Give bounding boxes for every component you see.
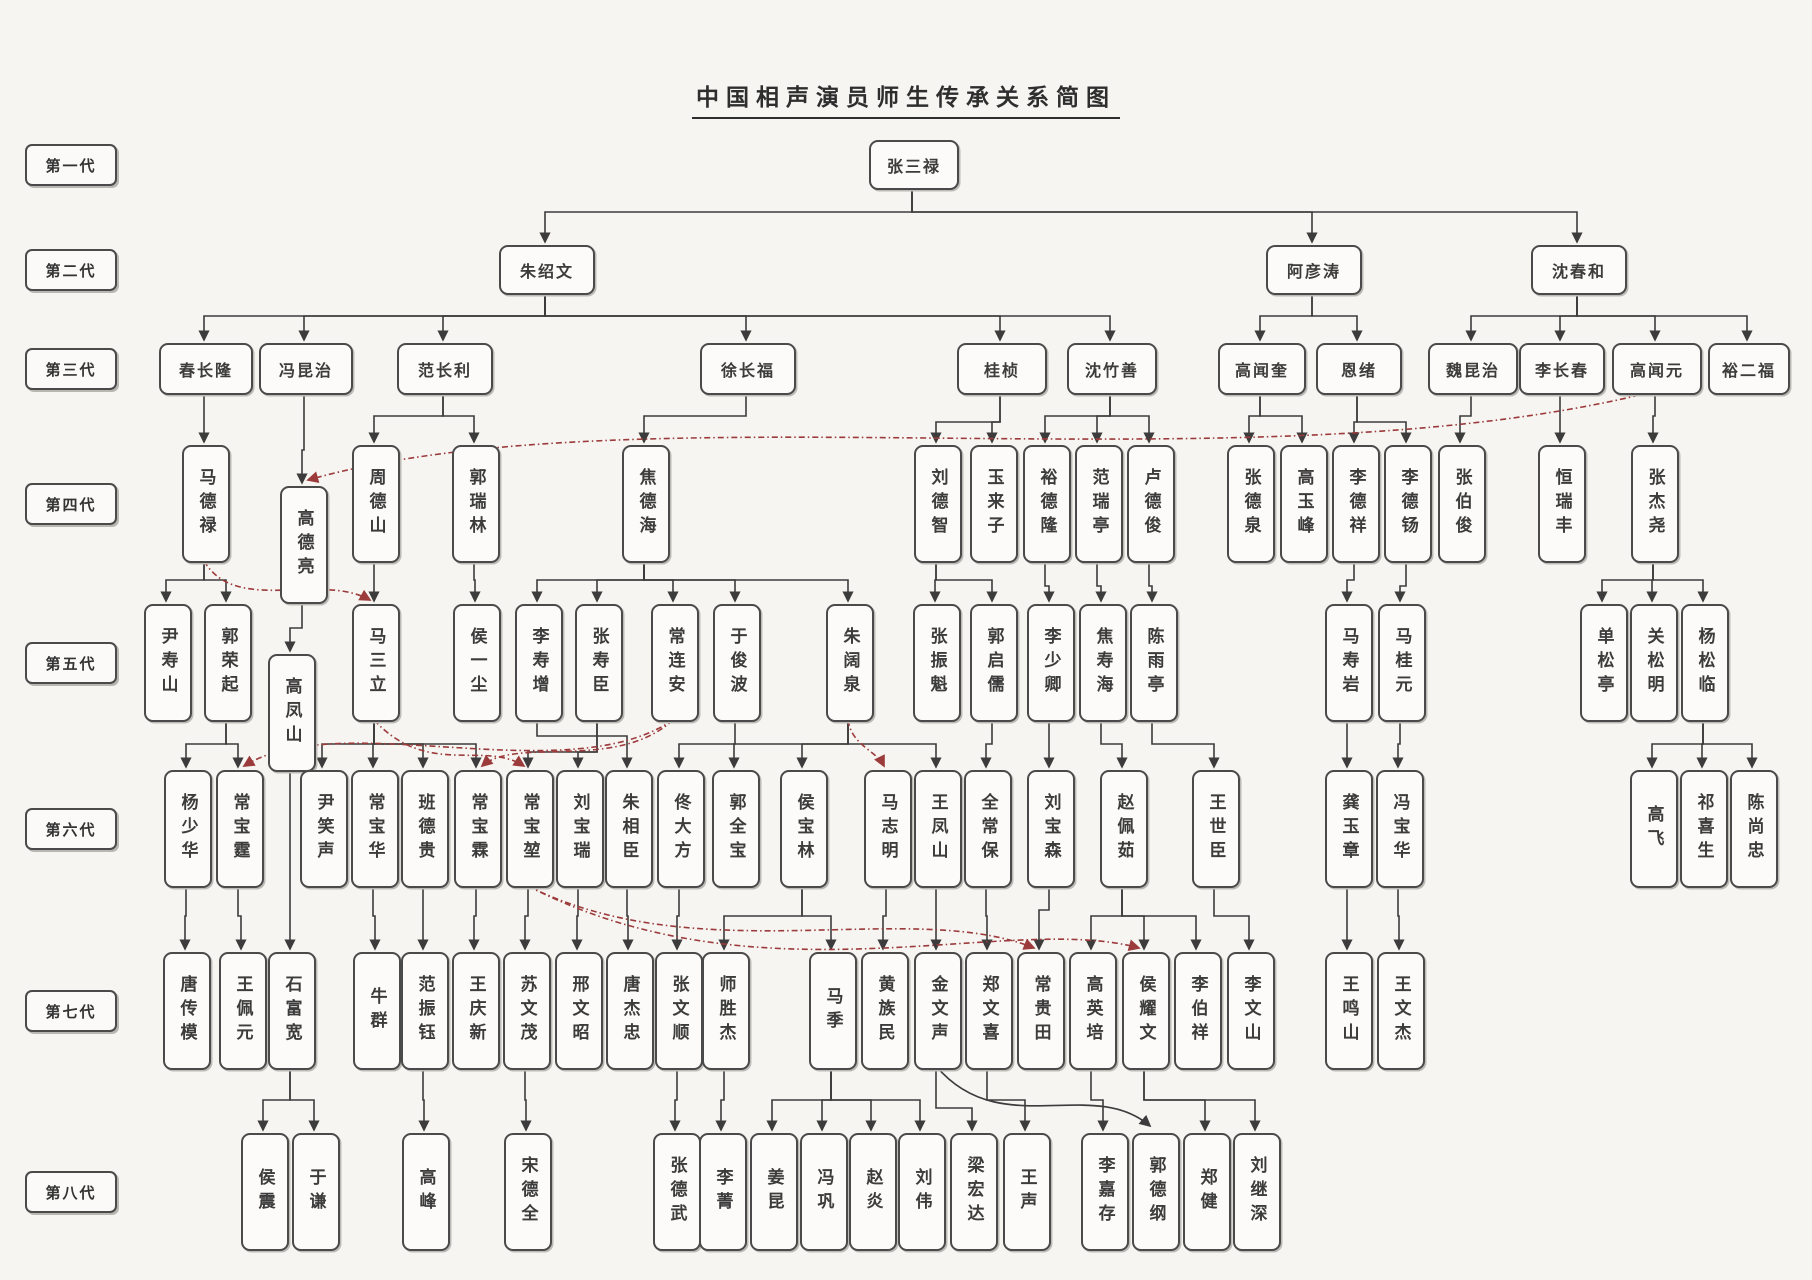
person-node-liu_baosen: 刘宝森 [1027,770,1075,888]
person-node-gong_yuzhang: 龚玉章 [1325,770,1373,888]
edge-zhu_shaowen-fan_changli [443,291,545,340]
edge-yang_shaohua-tang_chuanmo [185,884,186,949]
person-node-yu_delong: 裕德隆 [1023,445,1071,563]
person-node-guo_degang: 郭德纲 [1132,1133,1180,1251]
generation-label-7: 第七代 [25,990,117,1032]
edge-zhu_shaowen-shen_zhushan [545,291,1110,340]
person-node-guan_songming: 关松明 [1630,604,1678,722]
edge-jin_wensheng-liang_hongda [936,1066,972,1130]
person-node-ma_shouyan: 马寿岩 [1325,604,1373,722]
edge-quan_changbao-zheng_wenxi [986,884,987,949]
edge-guo_qiru-quan_changbao [986,718,992,767]
person-node-jin_wensheng: 金文声 [914,952,962,1070]
edge-li_dexi-ma_guiyuan [1400,559,1406,601]
person-node-zhou_deshan: 周德山 [352,445,400,563]
edge-tong_dafang-zhang_wenshun [677,884,679,949]
person-node-jiao_shouhai: 焦寿海 [1079,604,1127,722]
edge-ma_zhiming-huang_zumin [883,884,886,949]
person-node-chang_baoting: 常宝霆 [216,770,264,888]
person-node-yang_songlin: 杨松临 [1681,604,1729,722]
person-node-lu_dejun: 卢德俊 [1127,445,1175,563]
edge-yang_songlin-gao_fei [1652,718,1703,767]
person-node-liu_wei: 刘伟 [898,1133,946,1251]
edge-liu_dezhi-guo_qiru [936,559,992,601]
person-node-shen_zhushan: 沈竹善 [1067,343,1157,395]
edge-zhang_jieyao-yang_songlin [1653,559,1703,601]
person-node-shan_songting: 单松亭 [1580,604,1628,722]
person-node-wang_wenjie: 王文杰 [1377,952,1425,1070]
person-node-yu_laizi: 玉来子 [970,445,1018,563]
special-link-zhu_kuoquan-ma_zhiming [848,720,884,766]
edge-li_shouzeng-zhu_xiangchen [537,718,627,767]
edge-gui_zhen-yu_laizi [992,391,1000,442]
person-node-chen_shangzhong: 陈尚忠 [1730,770,1778,888]
person-node-quan_changbao: 全常保 [964,770,1012,888]
person-node-xu_changfu: 徐长福 [700,343,796,395]
person-node-guo_qiru: 郭启儒 [970,604,1018,722]
person-node-wang_qingxin: 王庆新 [452,952,500,1070]
person-node-feng_gong: 冯巩 [800,1133,848,1251]
edge-zhang_shouchen-liu_baorui [578,718,597,767]
person-node-chang_baolin: 常宝霖 [454,770,502,888]
person-node-fan_zhenyu: 范振钰 [401,952,449,1070]
edge-yang_songlin-chen_shangzhong [1703,718,1752,767]
person-node-li_jing: 李菁 [699,1133,747,1251]
person-node-song_dequan: 宋德全 [504,1133,552,1251]
person-node-liu_baorui: 刘宝瑞 [556,770,604,888]
generation-label-5: 第五代 [25,642,117,684]
person-node-hou_baolin: 侯宝林 [780,770,828,888]
edge-zheng_wenxi-wang_sheng [987,1066,1025,1130]
edge-hou_baolin-ma_ji [802,884,831,949]
edge-lu_dejun-chen_yuting [1149,559,1152,601]
person-node-gao_deliang: 高德亮 [280,486,328,604]
edge-zhao_peiru-li_boxiang [1122,884,1196,949]
edge-zhang_shouchen-chang_baokun [528,718,597,767]
person-node-zhao_yan: 赵炎 [849,1133,897,1251]
person-node-chen_yuting: 陈雨亭 [1130,604,1178,722]
edge-guo_ruilin-hou_yichen [474,559,475,601]
person-node-yu_qian: 于谦 [292,1133,340,1251]
generation-label-3: 第三代 [25,348,117,390]
person-node-li_dexi: 李德钖 [1384,445,1432,563]
generation-label-4: 第四代 [25,483,117,525]
edge-ma_guiyuan-feng_baohua [1398,718,1400,767]
edge-wang_shichen-li_wenshan [1214,884,1249,949]
edge-gao_wenyuan-zhang_jieyao [1653,391,1655,442]
person-node-yu_junbo: 于俊波 [713,604,761,722]
person-node-zhang_jieyao: 张杰尧 [1631,445,1679,563]
person-node-jiang_kun: 姜昆 [750,1133,798,1251]
edge-hou_yaowen-zheng_jian [1144,1066,1205,1130]
person-node-gao_yingpei: 高英培 [1069,952,1117,1070]
person-node-feng_kunzhi: 冯昆治 [259,343,353,395]
edge-yu_delong-li_shaoqing [1045,559,1049,601]
edge-chang_baohua-niu_qun [373,884,375,949]
person-node-zhang_sanlu: 张三禄 [869,140,959,190]
person-node-huang_zumin: 黄族民 [861,952,909,1070]
person-node-hou_yichen: 侯一尘 [453,604,501,722]
edge-zhang_wenshun-zhang_dewu [675,1066,677,1130]
person-node-ma_delu: 马德禄 [182,445,230,563]
edge-hou_baolin-shi_shengjie [724,884,802,949]
edge-chang_baokun-su_wenmao [525,884,528,949]
person-node-yang_shaohua: 杨少华 [164,770,212,888]
edge-ma_sanli-ban_degui [374,718,423,767]
person-node-hou_yaowen: 侯耀文 [1122,952,1170,1070]
edge-feng_kunzhi-gao_deliang [302,391,304,483]
edge-zhang_sanlu-a_yantao [912,186,1312,242]
person-node-chang_baohua: 常宝华 [351,770,399,888]
person-node-liu_dezhi: 刘德智 [914,445,962,563]
person-node-shi_shengjie: 师胜杰 [702,952,750,1070]
edge-zhang_sanlu-zhu_shaowen [545,186,912,242]
person-node-zhang_bojun: 张伯俊 [1438,445,1486,563]
edge-gao_yingpei-li_jiacun [1091,1066,1103,1130]
edge-fan_zhenyu-gao_feng8 [423,1066,424,1130]
edge-shen_zhushan-fan_ruiting [1097,391,1110,442]
generation-label-6: 第六代 [25,808,117,850]
person-node-gui_zhen: 桂桢 [957,343,1047,395]
person-node-yu_erfu: 裕二福 [1708,343,1790,395]
edge-fan_ruiting-jiao_shouhai [1097,559,1101,601]
person-node-li_dexiang: 李德祥 [1332,445,1380,563]
person-node-chang_guitian: 常贵田 [1017,952,1065,1070]
person-node-zhang_wenshun: 张文顺 [655,952,703,1070]
edge-feng_baohua-wang_wenjie [1398,884,1399,949]
person-node-zhang_dewu: 张德武 [653,1133,701,1251]
person-node-fan_ruiting: 范瑞亭 [1075,445,1123,563]
edge-guo_rongqi-yang_shaohua [186,718,226,767]
person-node-liu_jishen: 刘继深 [1233,1133,1281,1251]
person-node-zhu_kuoquan: 朱阔泉 [826,604,874,722]
edge-gao_wenkui-zhang_dequan [1249,391,1260,442]
person-node-gao_wenyuan: 高闻元 [1612,343,1702,395]
edge-shi_fukuan-hou_zhen [263,1066,290,1130]
person-node-ban_degui: 班德贵 [401,770,449,888]
person-node-tong_dafang: 佟大方 [657,770,705,888]
edge-zhang_jieyao-shan_songting [1602,559,1653,601]
person-node-wang_peiyuan: 王佩元 [219,952,267,1070]
person-node-en_xu: 恩绪 [1316,343,1402,395]
edge-jiao_dehai-zhang_shouchen [597,559,644,601]
person-node-wang_mingshan: 王鸣山 [1325,952,1373,1070]
person-node-yin_xiaosheng: 尹笑声 [300,770,348,888]
person-node-yin_shoushan: 尹寿山 [144,604,192,722]
person-node-xing_wenzhao: 邢文昭 [555,952,603,1070]
edge-hou_yaowen-liu_jishen [1144,1066,1255,1130]
edge-zhang_sanlu-shen_chunhe [912,186,1577,242]
edge-ma_sanli-chang_baolin [374,718,476,767]
person-node-shen_chunhe: 沈春和 [1531,245,1627,295]
edge-wei_kunzhi-zhang_bojun [1460,391,1471,442]
person-node-li_changchun: 李长春 [1519,343,1605,395]
person-node-li_shaoqing: 李少卿 [1027,604,1075,722]
edge-en_xu-li_dexi [1357,391,1406,442]
person-node-hou_zhen: 侯震 [241,1133,289,1251]
person-node-wang_fengshan: 王凤山 [914,770,962,888]
person-node-wang_shichen: 王世臣 [1192,770,1240,888]
edge-gui_zhen-liu_dezhi [936,391,1000,442]
person-node-fan_changli: 范长利 [397,343,493,395]
edge-liu_baorui-xing_wenzhao [577,884,578,949]
person-node-tang_chuanmo: 唐传模 [163,952,211,1070]
edge-shi_shengjie-li_jing [721,1066,724,1130]
person-node-li_boxiang: 李伯祥 [1174,952,1222,1070]
edge-su_wenmao-song_dequan [525,1066,526,1130]
person-node-wei_kunzhi: 魏昆治 [1428,343,1518,395]
person-node-shi_fukuan: 石富宽 [268,952,316,1070]
person-node-gao_fei: 高飞 [1630,770,1678,888]
edge-chen_yuting-wang_shichen [1152,718,1214,767]
edge-shen_chunhe-li_changchun [1560,291,1577,340]
person-node-zhu_xiangchen: 朱相臣 [605,770,653,888]
person-node-wang_sheng: 王声 [1003,1133,1051,1251]
person-node-li_shouzeng: 李寿增 [515,604,563,722]
person-node-ma_guiyuan: 马桂元 [1378,604,1426,722]
edge-zhu_kuoquan-guo_quanbao [734,718,848,767]
edge-fan_changli-zhou_deshan [374,391,443,442]
edge-zhao_peiru-gao_yingpei [1091,884,1122,949]
edge-gao_wenkui-gao_yufeng [1260,391,1302,442]
edge-li_dexiang-ma_shouyan [1347,559,1354,601]
person-node-guo_rongqi: 郭荣起 [204,604,252,722]
edge-fan_changli-guo_ruilin [443,391,474,442]
person-node-chang_baokun: 常宝堃 [506,770,554,888]
person-node-gao_feng8: 高峰 [402,1133,450,1251]
person-node-zheng_jian: 郑健 [1183,1133,1231,1251]
edge-shi_fukuan-yu_qian [290,1066,314,1130]
generation-label-1: 第一代 [25,144,117,186]
edge-jiao_shouhai-zhao_peiru [1101,718,1122,767]
person-node-gao_fengshan: 高凤山 [268,654,316,772]
person-node-gao_yufeng: 高玉峰 [1280,445,1328,563]
person-node-a_yantao: 阿彦涛 [1266,245,1362,295]
person-node-heng_ruifeng: 恒瑞丰 [1538,445,1586,563]
person-node-zhu_shaowen: 朱绍文 [499,245,595,295]
person-node-su_wenmao: 苏文茂 [503,952,551,1070]
person-node-li_jiacun: 李嘉存 [1081,1133,1129,1251]
person-node-zhang_dequan: 张德泉 [1227,445,1275,563]
connector-lines [0,0,1812,1280]
person-node-niu_qun: 牛群 [353,952,401,1070]
lineage-diagram: 中国相声演员师生传承关系简图 第一代第二代第三代第四代第五代第六代第七代第八代 … [0,0,1812,1280]
edge-chang_baoting-wang_peiyuan [238,884,241,949]
edge-a_yantao-gao_wenkui [1260,291,1312,340]
person-node-liang_hongda: 梁宏达 [950,1133,998,1251]
person-node-ma_sanli: 马三立 [352,604,400,722]
person-node-zhang_zhenkui: 张振魁 [913,604,961,722]
edge-jiao_dehai-zhu_kuoquan [644,559,848,601]
edge-a_yantao-en_xu [1312,291,1357,340]
page-title: 中国相声演员师生传承关系简图 [692,78,1120,119]
person-node-chang_lianan: 常连安 [651,604,699,722]
edge-ma_ji-feng_gong [822,1066,831,1130]
person-node-ma_zhiming: 马志明 [864,770,912,888]
edge-zhu_xiangchen-tang_jiezhong [627,884,628,949]
edge-xu_changfu-jiao_dehai [644,391,746,442]
edge-shen_zhushan-lu_dejun [1110,391,1149,442]
person-node-chun_changlong: 春长隆 [159,343,253,395]
edge-shen_chunhe-yu_erfu [1577,291,1747,340]
person-node-guo_quanbao: 郭全宝 [712,770,760,888]
edge-ma_ji-zhao_yan [831,1066,871,1130]
person-node-feng_baohua: 冯宝华 [1376,770,1424,888]
edge-yu_junbo-tong_dafang [679,718,735,767]
special-link-chang_baokun-chang_guitian [528,886,1034,948]
special-link-jin_wensheng-guo_degang [936,1066,1150,1126]
person-node-guo_ruilin: 郭瑞林 [452,445,500,563]
edge-ma_delu-yin_shoushan [166,559,204,601]
person-node-jiao_dehai: 焦德海 [622,445,670,563]
person-node-zhao_peiru: 赵佩茹 [1100,770,1148,888]
generation-label-2: 第二代 [25,249,117,291]
generation-label-8: 第八代 [25,1171,117,1213]
person-node-gao_wenkui: 高闻奎 [1218,343,1306,395]
person-node-zhang_shouchen: 张寿臣 [575,604,623,722]
edge-zhu_kuoquan-hou_baolin [802,718,848,767]
person-node-li_wenshan: 李文山 [1227,952,1275,1070]
person-node-tang_jiezhong: 唐杰忠 [606,952,654,1070]
person-node-zheng_wenxi: 郑文喜 [965,952,1013,1070]
special-link-ma_sanli-chang_baokun [374,720,524,766]
edge-ma_ji-liu_wei [831,1066,920,1130]
edge-gao_deliang-gao_fengshan [290,600,302,651]
edge-chang_baolin-wang_qingxin [474,884,476,949]
person-node-qi_xisheng: 祁喜生 [1680,770,1728,888]
person-node-ma_ji: 马季 [809,952,857,1070]
edge-guo_rongqi-chang_baoting [226,718,238,767]
edge-zhu_kuoquan-wang_fengshan [848,718,936,767]
